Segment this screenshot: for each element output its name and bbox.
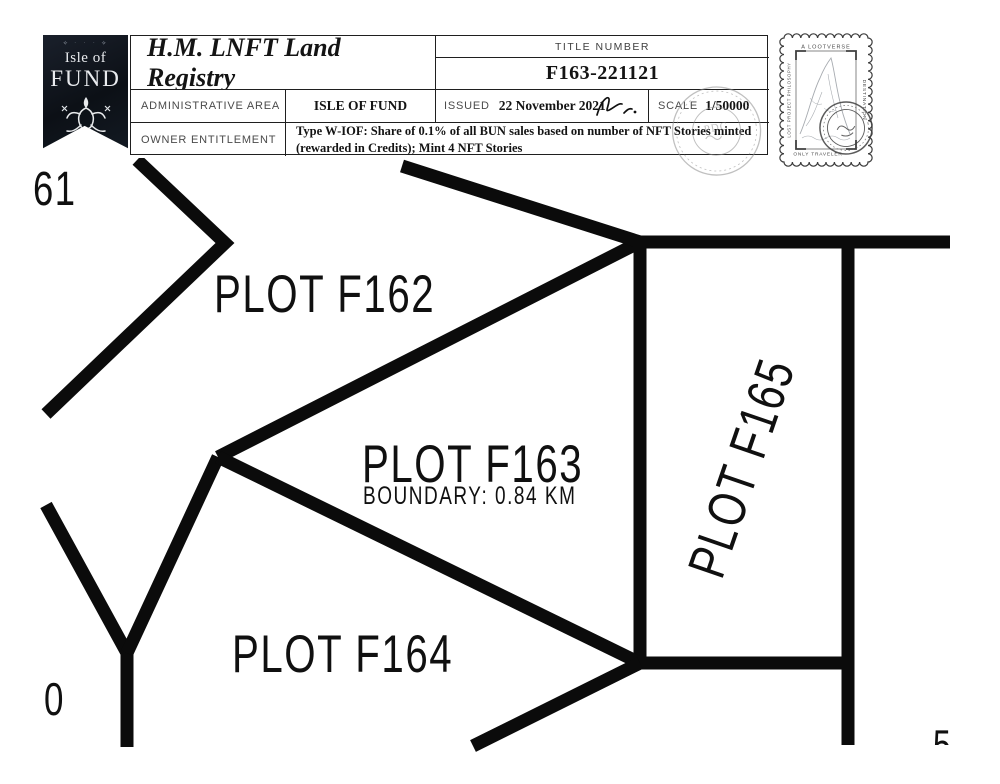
- frog-crest-icon: [43, 94, 128, 143]
- admin-area-value: ISLE OF FUND: [286, 89, 436, 122]
- stamp-perforation: [780, 34, 872, 166]
- banner-fund: FUND: [43, 66, 128, 92]
- stamp-right-text: DESTINATION: [861, 80, 867, 121]
- boundary-line: [473, 663, 640, 746]
- issued-label: ISSUED: [444, 100, 490, 112]
- owner-entitlement-label: OWNER ENTITLEMENT: [131, 122, 286, 156]
- stamp-left-text: LOST PROJECT PHILOSOPHY: [787, 62, 792, 137]
- plot-partial-bottom-right-label: 5: [933, 724, 965, 745]
- banner-ornament: ✧ ᛫ ᛫ ᛫ ✧: [43, 40, 128, 47]
- title-number-label: TITLE NUMBER: [436, 36, 769, 58]
- registry-title: H.M. LNFT Land Registry: [131, 36, 436, 89]
- boundary-line: [402, 166, 640, 242]
- boundary-line: [127, 457, 218, 653]
- isle-of-fund-banner: ✧ ᛫ ᛫ ᛫ ✧ Isle of FUND: [43, 35, 128, 153]
- admin-area-label: ADMINISTRATIVE AREA: [131, 89, 286, 122]
- plot-f164-label: PLOT F164: [232, 628, 453, 681]
- plot-f162-label: PLOT F162: [214, 268, 435, 321]
- plot-f160-partial-label: 0: [44, 676, 65, 722]
- issued-cell: ISSUED 22 November 2021: [436, 89, 649, 122]
- land-registry-certificate: ✧ ᛫ ᛫ ᛫ ✧ Isle of FUND H.M. LNFT Land Re…: [0, 0, 1000, 784]
- stamp-top-text: A LOOTVERSE: [801, 45, 851, 51]
- plot-f163-boundary-label: BOUNDARY: 0.84 KM: [363, 484, 576, 509]
- issued-date: 22 November 2021: [499, 98, 606, 114]
- plot-f161-partial-label: 61: [33, 166, 77, 214]
- seal-center-text: PDC: [703, 120, 729, 136]
- banner-isle-of: Isle of: [43, 50, 128, 67]
- signature-icon: [594, 92, 638, 122]
- postage-stamp: A LOOTVERSE DESTINATION LOST PROJECT PHI…: [779, 33, 879, 178]
